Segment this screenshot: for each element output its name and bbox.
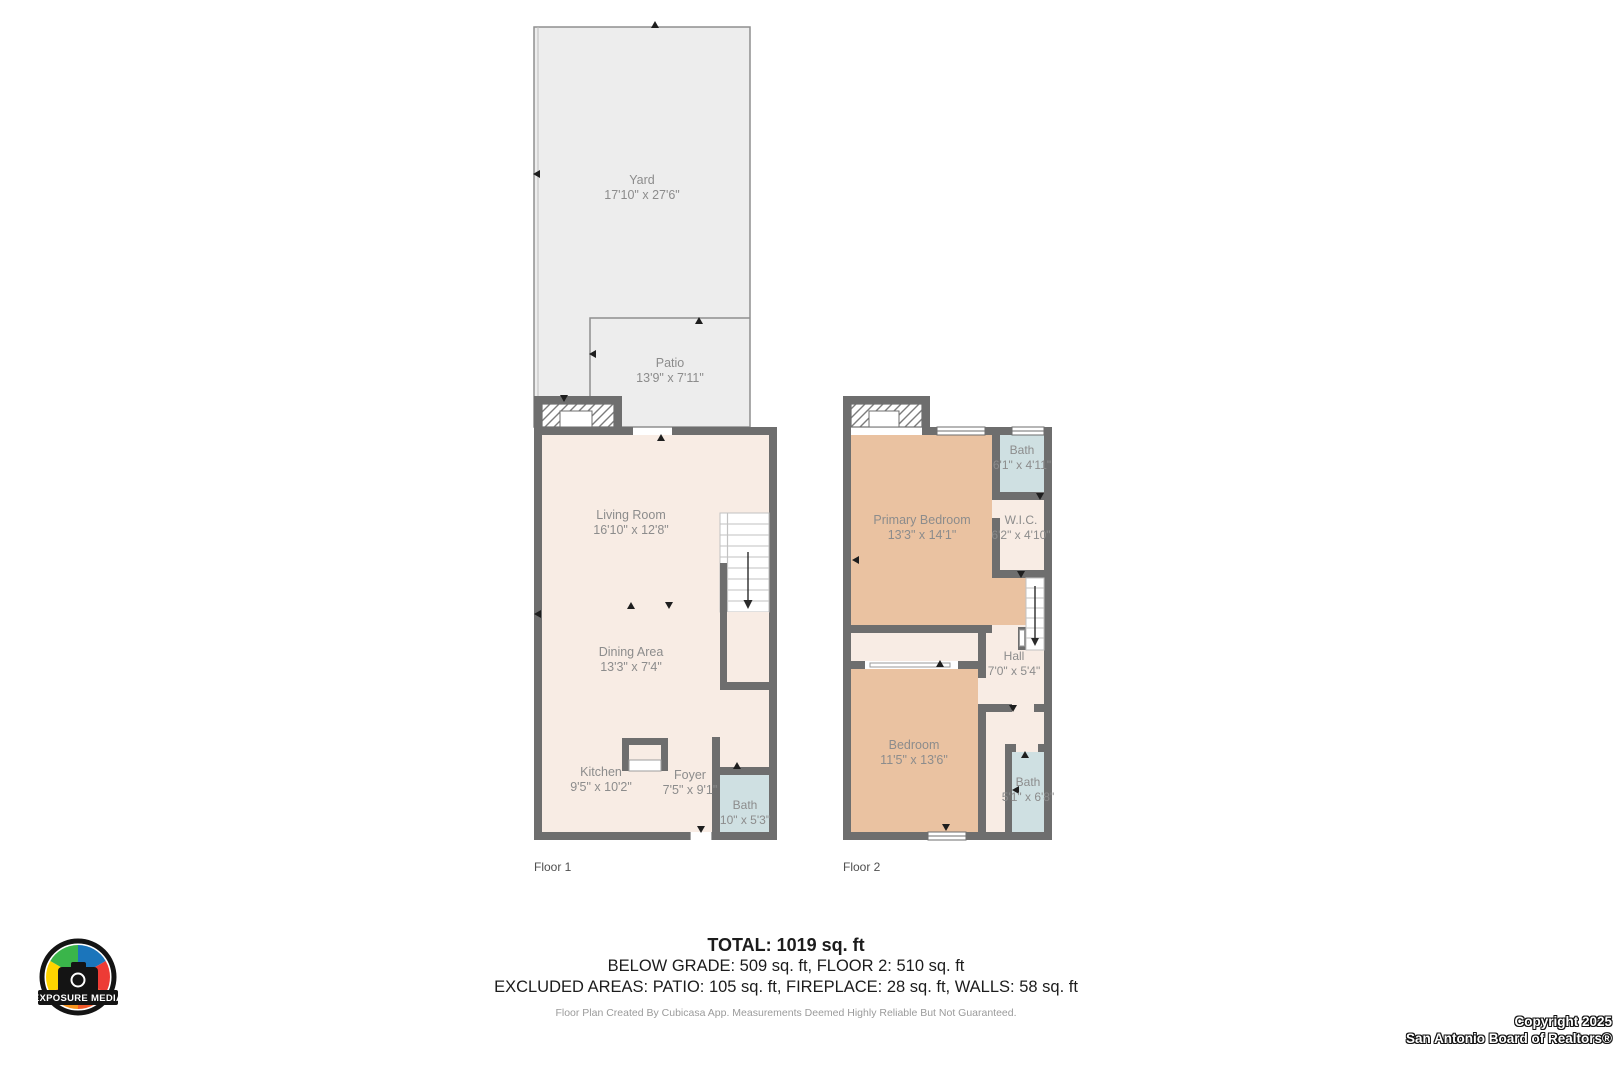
closet-bottom-wall-floor1 [720,682,777,690]
fireplace-floor2-icon [851,404,922,427]
room-dim: 6'2" x 4'10" [991,528,1050,543]
fireplace-floor1-icon [542,404,614,427]
room-dim: 7'0" x 5'4" [988,664,1040,679]
exposure-media-logo: EXPOSURE MEDIA [34,936,122,1024]
room-name: Dining Area [599,645,664,659]
room-label-foyer: Foyer 7'5" x 9'1" [663,768,718,798]
closet-sliding-door [865,661,958,669]
floor-plan-page: Yard 17'10" x 27'6" Patio 13'9" x 7'11" … [0,0,1620,1080]
room-dim: 9'5" x 10'2" [570,780,632,795]
room-dim: 5'1" x 6'8" [1002,790,1054,805]
room-dim: 13'3" x 7'4" [599,660,664,675]
room-name: Bath [733,798,758,812]
total-area-text: TOTAL: 1019 sq. ft [0,934,1572,956]
room-label-living-room: Living Room 16'10" x 12'8" [593,508,669,538]
room-dim: 10" x 5'3" [720,813,770,828]
room-label-dining-area: Dining Area 13'3" x 7'4" [599,645,664,675]
stairs-floor1 [720,513,769,612]
room-name: Patio [656,356,685,370]
copyright-notice: Copyright 2025 San Antonio Board of Real… [1406,1014,1612,1047]
room-label-hall: Hall 7'0" x 5'4" [988,649,1040,679]
logo-text: EXPOSURE MEDIA [34,993,122,1004]
room-name: W.I.C. [1005,513,1038,527]
entry-door [690,832,712,840]
excluded-area-text: EXCLUDED AREAS: PATIO: 105 sq. ft, FIREP… [0,977,1572,998]
floor-plan-graphics [0,0,1620,1080]
room-label-primary-bedroom: Primary Bedroom 13'3" x 14'1" [873,513,970,543]
floor1-plan [533,21,777,840]
room-label-yard: Yard 17'10" x 27'6" [604,173,680,203]
understair-closet-floor1 [727,612,769,682]
copyright-line2: San Antonio Board of Realtors® [1406,1031,1612,1048]
floor2-caption: Floor 2 [843,860,880,874]
room-name: Primary Bedroom [873,513,970,527]
room-label-bath-floor2-upper: Bath 6'1" x 4'11" [993,443,1051,473]
room-label-kitchen: Kitchen 9'5" x 10'2" [570,765,632,795]
room-dim: 7'5" x 9'1" [663,783,718,798]
room-name: Bath [1016,775,1041,789]
room-label-bath-floor2-lower: Bath 5'1" x 6'8" [1002,775,1054,805]
room-label-wic: W.I.C. 6'2" x 4'10" [991,513,1050,543]
room-dim: 13'9" x 7'11" [636,371,704,386]
copyright-line1: Copyright 2025 [1406,1014,1612,1031]
room-name: Kitchen [580,765,622,779]
room-label-patio: Patio 13'9" x 7'11" [636,356,704,386]
room-label-bath-floor1: Bath 10" x 5'3" [720,798,770,828]
floor1-caption: Floor 1 [534,860,571,874]
area-summary: TOTAL: 1019 sq. ft BELOW GRADE: 509 sq. … [0,934,1572,1019]
room-dim: 13'3" x 14'1" [873,528,970,543]
stair-side-wall-floor1 [720,563,727,690]
room-dim: 17'10" x 27'6" [604,188,680,203]
room-name: Bedroom [889,738,940,752]
room-dim: 6'1" x 4'11" [993,458,1051,473]
room-name: Hall [1004,649,1025,663]
room-name: Foyer [674,768,706,782]
room-name: Living Room [596,508,665,522]
room-dim: 16'10" x 12'8" [593,523,669,538]
room-label-bedroom: Bedroom 11'5" x 13'6" [880,738,948,768]
room-dim: 11'5" x 13'6" [880,753,948,768]
disclaimer-text: Floor Plan Created By Cubicasa App. Meas… [0,1007,1572,1019]
room-name: Bath [1010,443,1035,457]
grade-area-text: BELOW GRADE: 509 sq. ft, FLOOR 2: 510 sq… [0,956,1572,977]
room-name: Yard [629,173,654,187]
